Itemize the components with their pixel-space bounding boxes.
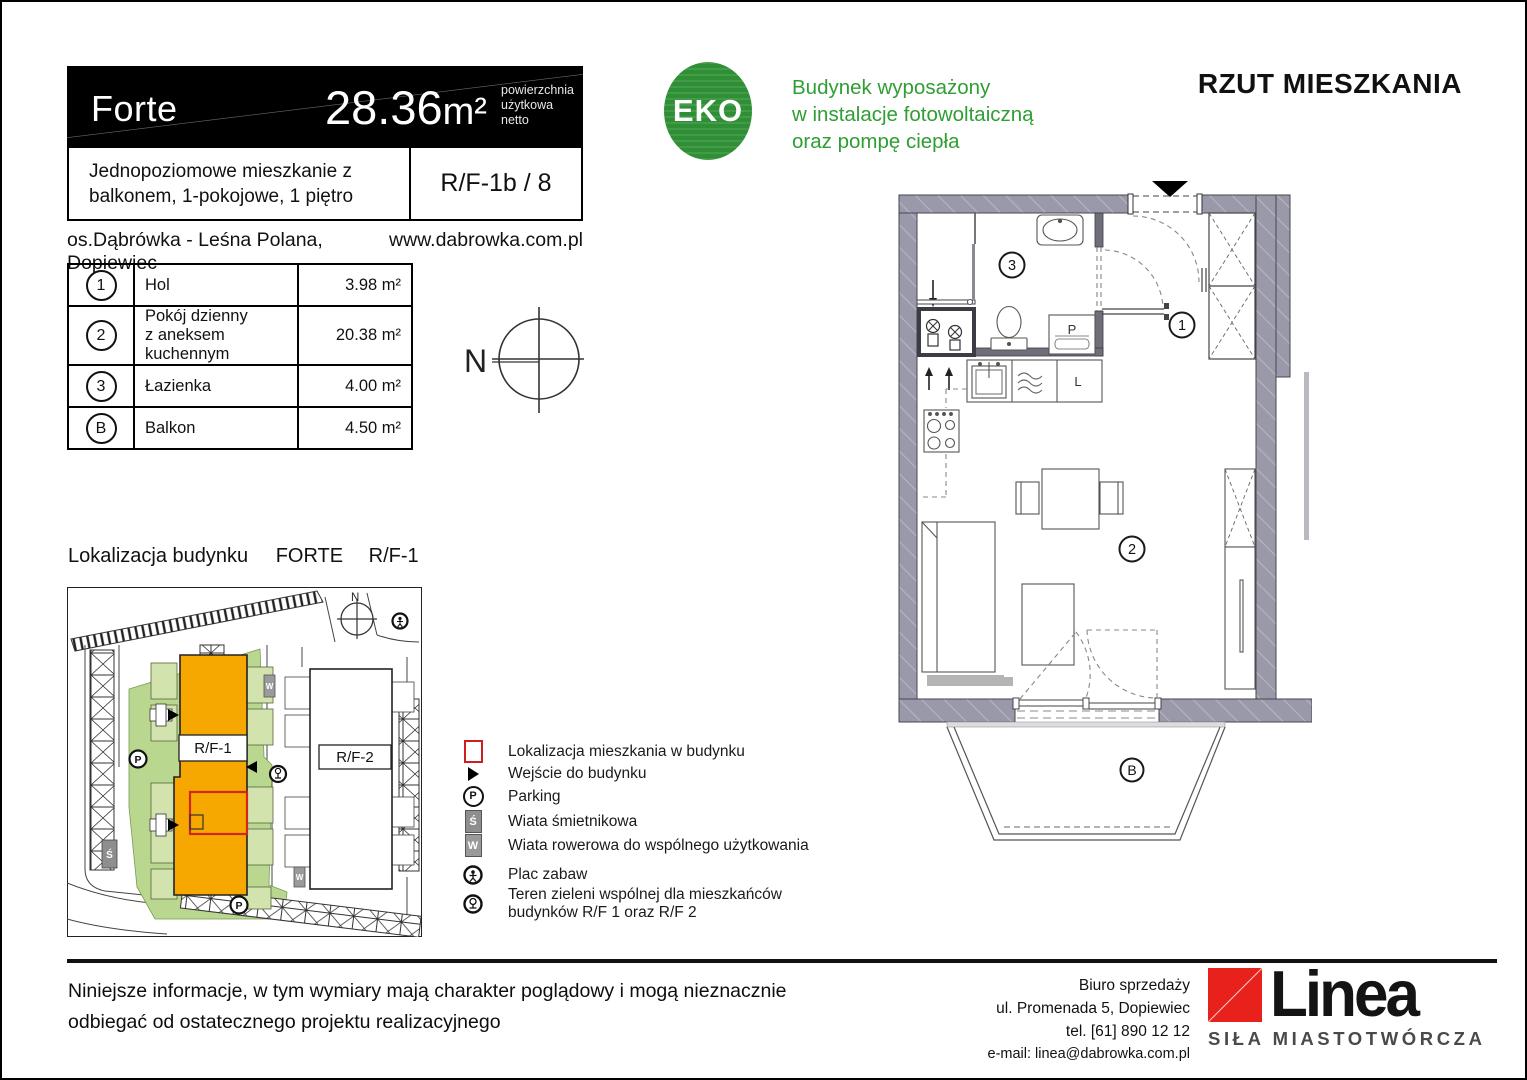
legend-item-apartment: Lokalizacja mieszkania w budynku xyxy=(460,740,745,763)
office-address: ul. Promenada 5, Dopiewiec xyxy=(932,997,1190,1020)
legend-item-green-area: Teren zieleni wspólnej dla mieszkańców b… xyxy=(460,886,782,922)
area-caption-line: netto xyxy=(501,113,574,128)
legend-item-entrance: Wejście do budynku xyxy=(460,765,646,783)
floor-plan: P xyxy=(880,180,1312,872)
area-number: 28.36 xyxy=(325,81,443,134)
bike-shed-icon: W xyxy=(465,834,482,857)
trash-shed-icon: Ś xyxy=(465,810,482,833)
hall-label: 1 xyxy=(1178,318,1186,334)
fridge-label: L xyxy=(1074,374,1081,389)
site-building-name: FORTE xyxy=(276,545,343,567)
office-phone: tel. [61] 890 12 12 xyxy=(932,1020,1190,1043)
room-area: 3.98 m² xyxy=(298,264,412,306)
entrance-door xyxy=(1128,181,1202,282)
utility-shaft xyxy=(919,280,974,390)
area-caption-line: powierzchnia xyxy=(501,83,574,98)
legend-label: Teren zieleni wspólnej dla mieszkańców b… xyxy=(508,886,782,922)
legend-label: Parking xyxy=(508,788,561,806)
linea-logo-square xyxy=(1208,968,1262,1022)
compass-north-label: N xyxy=(464,343,487,379)
room-area: 4.50 m² xyxy=(298,407,412,449)
hall-wardrobe xyxy=(1202,213,1255,359)
linea-brand: Linea xyxy=(1270,968,1417,1022)
project-name: Forte xyxy=(91,88,178,130)
legend-item-playground: Plac zabaw xyxy=(460,864,587,886)
map-north-label: N xyxy=(351,592,359,604)
bike-shed-marker: W xyxy=(296,873,304,882)
table-row: 2 Pokój dziennyz aneksem kuchennym 20.38… xyxy=(68,306,412,365)
entrance-arrow-icon xyxy=(1152,181,1188,197)
legend-label: Wiata śmietnikowa xyxy=(508,813,637,831)
room-area: 20.38 m² xyxy=(298,306,412,365)
parking-marker: P xyxy=(134,754,141,766)
legend-label: Plac zabaw xyxy=(508,866,587,884)
room-number-badge: 3 xyxy=(86,371,117,402)
disclaimer: Niniejsze informacje, w tym wymiary mają… xyxy=(68,976,787,1038)
parking-icon: P xyxy=(463,786,484,807)
washer-label: P xyxy=(1068,322,1077,337)
rf2-label: R/F-2 xyxy=(336,749,374,766)
toilet xyxy=(997,307,1021,338)
table xyxy=(1042,469,1099,529)
unit-code: R/F-1b / 8 xyxy=(411,148,581,219)
legend-item-trash-shed: Ś Wiata śmietnikowa xyxy=(460,810,637,833)
linea-tagline: SIŁA MIASTOTWÓRCZA xyxy=(1208,1028,1468,1050)
site-map: R/F-1 R/F-2 P P Ś xyxy=(67,587,422,937)
living-furniture xyxy=(922,469,1255,689)
rooms-table: 1 Hol 3.98 m² 2 Pokój dziennyz aneksem k… xyxy=(67,263,413,450)
linea-logo: Linea SIŁA MIASTOTWÓRCZA xyxy=(1208,968,1468,1050)
room-name: Balkon xyxy=(134,407,298,449)
green-area-icon xyxy=(462,893,484,915)
apartment-location-icon xyxy=(464,740,483,763)
legend-item-parking: P Parking xyxy=(460,786,561,807)
playground-icon xyxy=(462,864,484,886)
legend-label: Lokalizacja mieszkania w budynku xyxy=(508,743,745,761)
header-black-box: Forte 28.36m² powierzchnia użytkowa nett… xyxy=(67,66,583,146)
disclaimer-line: odbiegać od ostatecznego projektu realiz… xyxy=(68,1007,787,1038)
site-building-code: R/F-1 xyxy=(369,545,419,567)
building-rf1 xyxy=(174,655,247,895)
room-number-badge: B xyxy=(86,413,117,444)
sales-office-info: Biuro sprzedaży ul. Promenada 5, Dopiewi… xyxy=(932,974,1190,1066)
flyer-page: Forte 28.36m² powierzchnia użytkowa nett… xyxy=(0,0,1527,1080)
site-section-label: Lokalizacja budynku xyxy=(68,545,248,567)
website-url: www.dabrowka.com.pl xyxy=(389,229,583,275)
eco-text: Budynek wyposażony w instalacje fotowolt… xyxy=(792,74,1034,155)
area-caption-line: użytkowa xyxy=(501,98,574,113)
legend-item-bike-shed: W Wiata rowerowa do wspólnego użytkowani… xyxy=(460,834,809,857)
description-line1: Jednopoziomowe mieszkanie z xyxy=(89,161,352,182)
apartment-description: Jednopoziomowe mieszkanie z balkonem, 1-… xyxy=(69,148,411,219)
description-line2: balkonem, 1-pokojowe, 1 piętro xyxy=(89,186,353,207)
bath-label: 3 xyxy=(1008,258,1016,274)
eco-badge: EKO xyxy=(664,62,752,160)
area-value: 28.36m² xyxy=(325,80,487,135)
balcony xyxy=(947,722,1225,840)
room-name: Łazienka xyxy=(134,365,298,407)
rf1-label: R/F-1 xyxy=(194,740,232,757)
area-unit: m² xyxy=(443,91,487,133)
room-number-badge: 2 xyxy=(86,320,117,351)
legend-label: Wejście do budynku xyxy=(508,765,646,783)
site-section-title: Lokalizacja budynku FORTE R/F-1 xyxy=(68,545,419,568)
sofa xyxy=(922,522,995,672)
entrance-icon xyxy=(468,767,479,781)
page-title: RZUT MIESZKANIA xyxy=(1052,68,1462,100)
office-email: e-mail: linea@dabrowka.com.pl xyxy=(932,1043,1190,1066)
building-rf2 xyxy=(310,669,392,889)
bed xyxy=(1022,584,1074,665)
office-name: Biuro sprzedaży xyxy=(932,974,1190,997)
apartment-description-box: Jednopoziomowe mieszkanie z balkonem, 1-… xyxy=(67,146,583,221)
room-name: Hol xyxy=(134,264,298,306)
legend-label: Wiata rowerowa do wspólnego użytkowania xyxy=(508,837,809,855)
bike-shed-marker: W xyxy=(266,682,274,691)
balcony-label: B xyxy=(1127,762,1136,778)
room-area: 4.00 m² xyxy=(298,365,412,407)
living-label: 2 xyxy=(1128,542,1136,558)
compass: N xyxy=(452,297,612,437)
area-caption: powierzchnia użytkowa netto xyxy=(501,83,574,128)
eco-line: w instalacje fotowoltaiczną xyxy=(792,101,1034,128)
table-row: 1 Hol 3.98 m² xyxy=(68,264,412,306)
room-name: Pokój dziennyz aneksem kuchennym xyxy=(134,306,298,365)
eco-line: Budynek wyposażony xyxy=(792,74,1034,101)
table-row: 3 Łazienka 4.00 m² xyxy=(68,365,412,407)
parking-marker: P xyxy=(235,900,242,912)
bathroom-door xyxy=(1097,247,1169,320)
disclaimer-line: Niniejsze informacje, w tym wymiary mają… xyxy=(68,976,787,1007)
table-row: B Balkon 4.50 m² xyxy=(68,407,412,449)
trash-shed-marker: Ś xyxy=(106,848,113,861)
eco-line: oraz pompę ciepła xyxy=(792,128,1034,155)
room-number-badge: 1 xyxy=(86,270,117,301)
